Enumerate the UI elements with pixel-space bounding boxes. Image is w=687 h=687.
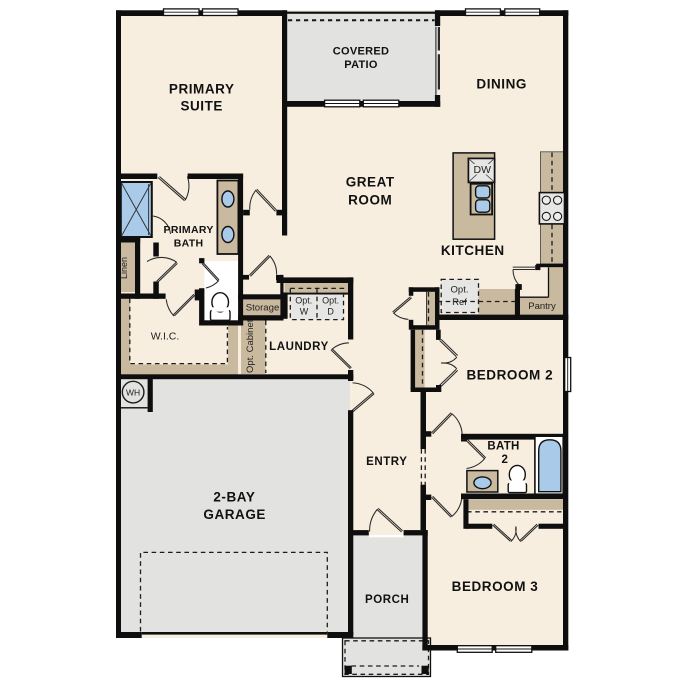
svg-text:PORCH: PORCH [365, 594, 409, 606]
svg-text:W: W [300, 306, 309, 316]
svg-text:ENTRY: ENTRY [366, 456, 407, 468]
svg-text:DINING: DINING [476, 77, 527, 92]
svg-text:D: D [327, 306, 334, 316]
svg-text:Pantry: Pantry [528, 301, 556, 312]
svg-text:Opt.: Opt. [322, 296, 339, 306]
svg-text:SUITE: SUITE [180, 99, 223, 114]
svg-text:Opt. Cabinet: Opt. Cabinet [245, 319, 256, 373]
svg-text:GARAGE: GARAGE [203, 507, 266, 522]
svg-text:KITCHEN: KITCHEN [441, 243, 505, 258]
svg-text:BATH: BATH [174, 237, 204, 249]
svg-text:BATH: BATH [487, 441, 519, 453]
svg-text:ROOM: ROOM [348, 193, 392, 208]
svg-text:WH: WH [126, 387, 140, 397]
svg-text:2: 2 [501, 454, 508, 466]
svg-text:Opt.: Opt. [451, 285, 469, 296]
svg-text:COVERED: COVERED [333, 46, 390, 58]
svg-text:PRIMARY: PRIMARY [164, 224, 214, 236]
svg-text:PRIMARY: PRIMARY [169, 81, 235, 96]
svg-text:PATIO: PATIO [344, 59, 378, 71]
svg-text:LAUNDRY: LAUNDRY [269, 341, 329, 353]
svg-text:Linen: Linen [119, 257, 129, 279]
svg-text:DW: DW [474, 164, 492, 176]
svg-text:Ref: Ref [452, 297, 467, 308]
svg-text:Storage: Storage [246, 303, 280, 314]
svg-text:2-BAY: 2-BAY [213, 490, 255, 505]
svg-text:Opt.: Opt. [295, 296, 312, 306]
svg-text:W.I.C.: W.I.C. [151, 331, 180, 343]
svg-text:BEDROOM 2: BEDROOM 2 [466, 367, 553, 382]
svg-text:GREAT: GREAT [346, 175, 395, 190]
svg-text:BEDROOM 3: BEDROOM 3 [452, 579, 539, 594]
